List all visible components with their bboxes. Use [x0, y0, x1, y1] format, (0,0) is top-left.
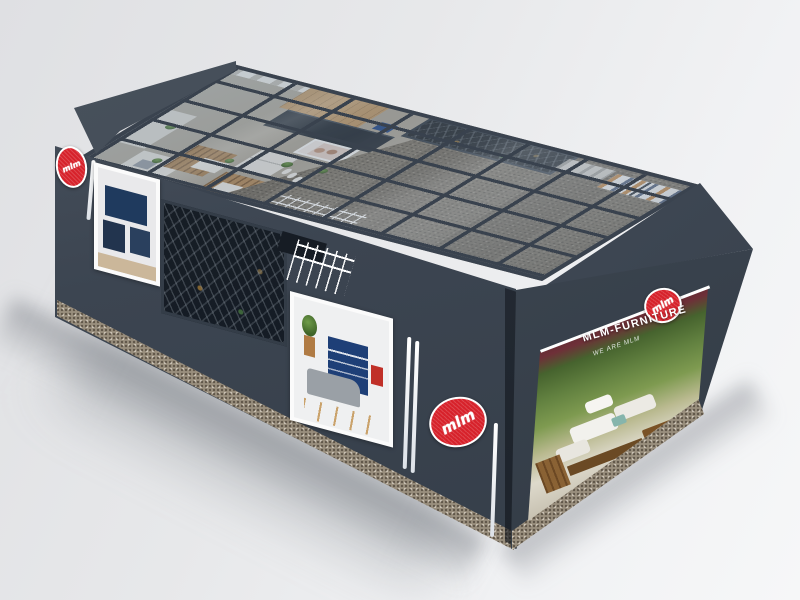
poster-art-sofa	[130, 227, 150, 258]
poster-desk-scene	[290, 291, 393, 448]
poster-desk-scene-art	[294, 296, 389, 442]
poster-living-room-art	[98, 167, 156, 282]
poster-living-room	[94, 162, 160, 287]
poster-art-pot	[304, 335, 315, 357]
mlm-logo-text: mlm	[438, 407, 477, 437]
kiosk-3d-render-scene: mlm mlm	[0, 0, 800, 600]
poster-art-sofa	[103, 220, 125, 254]
poster-art-wall-unit	[105, 185, 147, 226]
poster-art-red-frame	[371, 365, 383, 386]
mlm-logo-text: mlm	[61, 159, 82, 174]
